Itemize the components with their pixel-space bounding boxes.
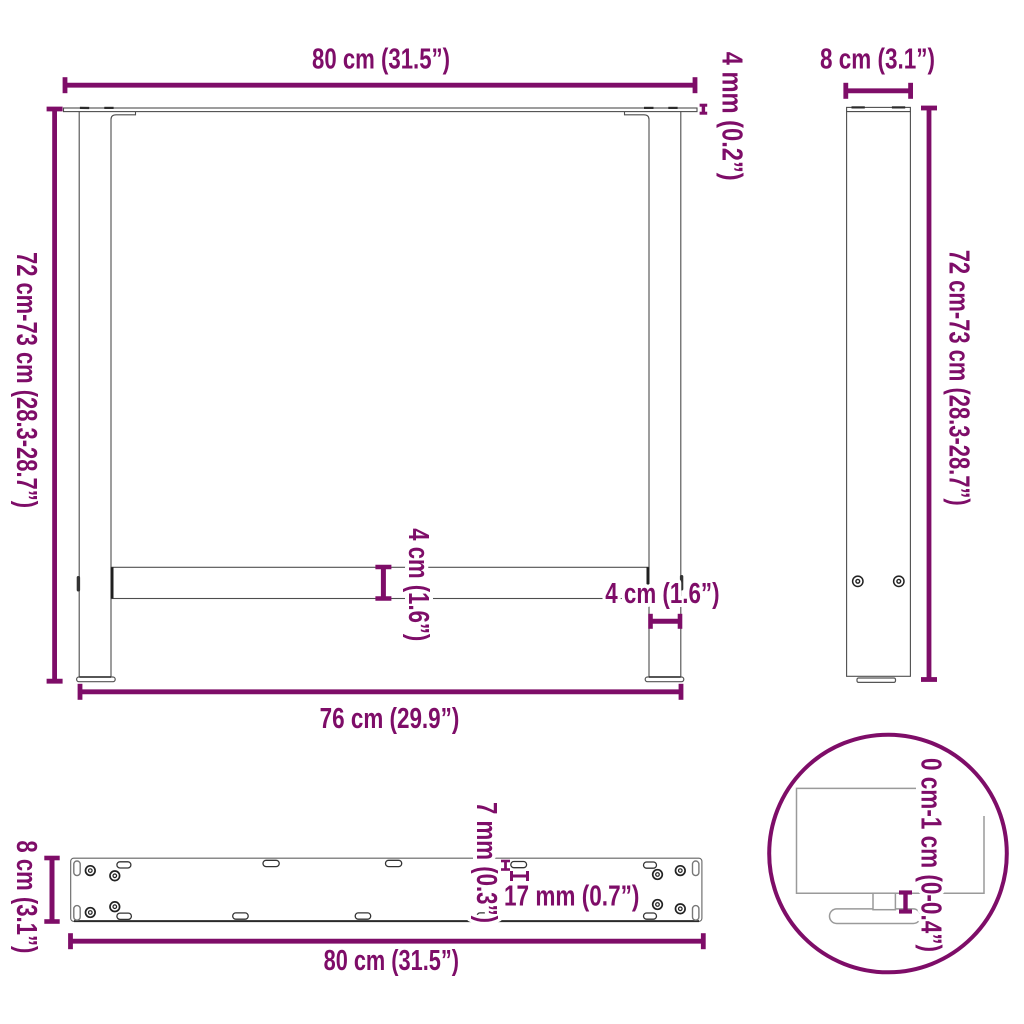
svg-text:8 cm (3.1”): 8 cm (3.1”) — [820, 43, 935, 75]
svg-text:80 cm (31.5”): 80 cm (31.5”) — [312, 43, 450, 75]
svg-text:72 cm-73 cm (28.3-28.7”): 72 cm-73 cm (28.3-28.7”) — [943, 250, 975, 506]
svg-text:72 cm-73 cm (28.3-28.7”): 72 cm-73 cm (28.3-28.7”) — [10, 252, 42, 508]
svg-text:4 mm (0.2”): 4 mm (0.2”) — [715, 52, 747, 181]
svg-text:7 mm (0.3”): 7 mm (0.3”) — [470, 802, 502, 923]
svg-text:4 cm (1.6”): 4 cm (1.6”) — [402, 528, 434, 641]
svg-text:17 mm (0.7”): 17 mm (0.7”) — [504, 881, 640, 913]
svg-text:8 cm (3.1”): 8 cm (3.1”) — [10, 840, 42, 953]
svg-text:80 cm (31.5”): 80 cm (31.5”) — [324, 945, 459, 977]
svg-text:76 cm (29.9”): 76 cm (29.9”) — [320, 703, 460, 735]
svg-text:4 cm (1.6”): 4 cm (1.6”) — [605, 578, 719, 610]
svg-text:0 cm-1 cm (0-0.4”): 0 cm-1 cm (0-0.4”) — [915, 758, 947, 952]
